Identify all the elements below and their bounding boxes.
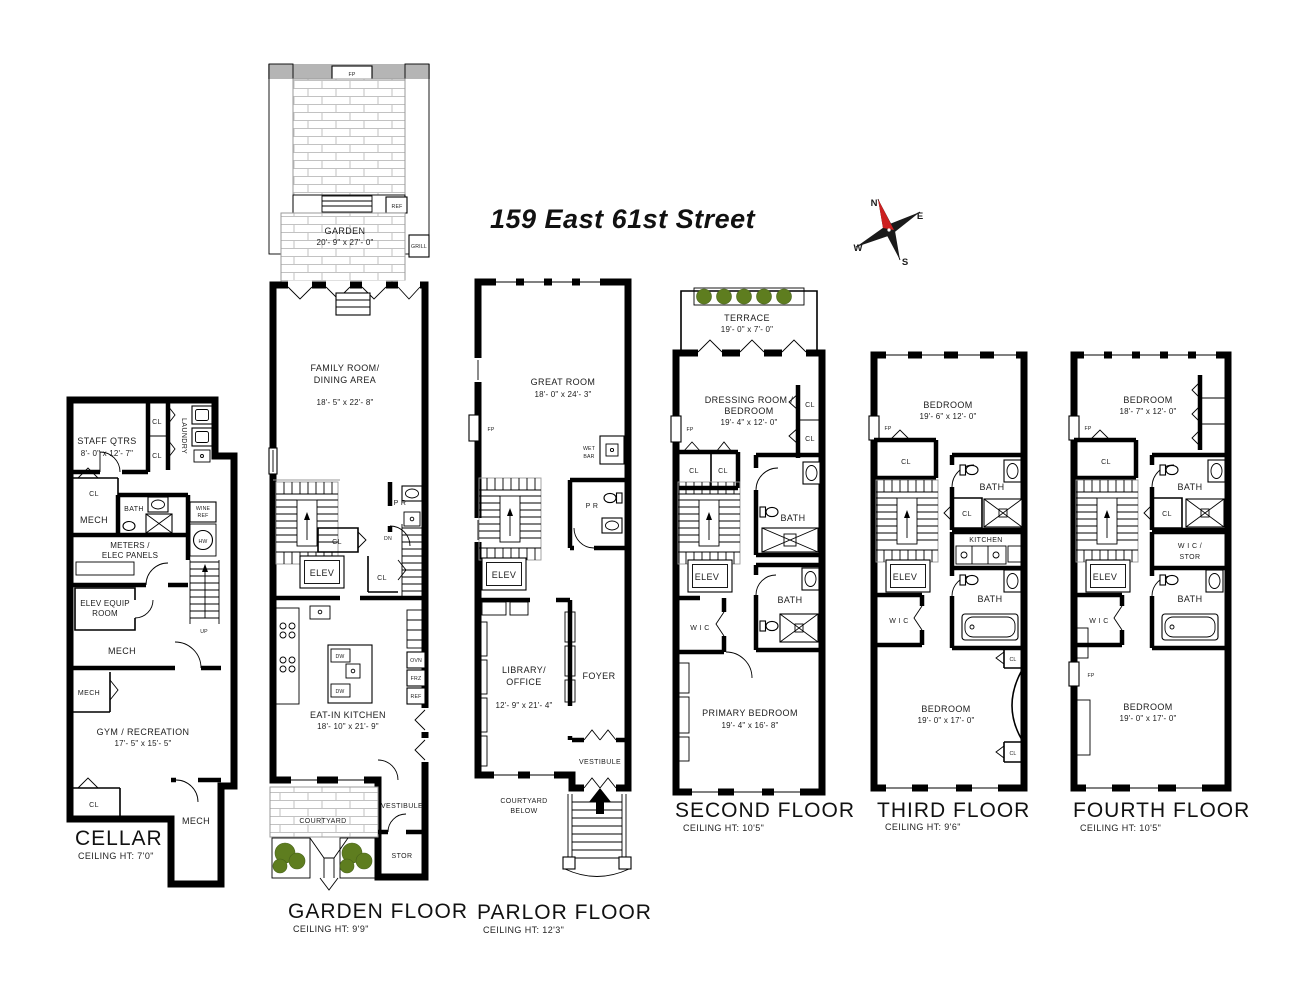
floor-ceiling-third: CEILING HT: 9'6" (885, 822, 961, 832)
floorplan-second: TERRACE 19'- 0" x 7'- 0" DRESSING ROOM /… (671, 288, 855, 833)
sink-icon (1206, 570, 1223, 592)
room-label-garden: GARDEN (325, 226, 366, 236)
room-label-cl: CL (901, 459, 911, 466)
label-dw: DW (335, 689, 344, 695)
room-label-cl: CL (1162, 511, 1172, 518)
room-label-dressing-2: BEDROOM (724, 406, 773, 416)
label-courtyard-below-1: COURTYARD (500, 798, 547, 805)
room-label-bath: BATH (978, 594, 1003, 604)
room-label-family-1: FAMILY ROOM/ (311, 363, 380, 373)
label-fp: FP (487, 427, 494, 433)
label-fp: FP (1087, 673, 1094, 679)
tub-icon (762, 528, 818, 552)
fireplace-box (671, 416, 681, 442)
compass-rose-icon: N E W S (854, 198, 924, 268)
room-label-mech: MECH (80, 515, 108, 525)
room-dim-staff-qtrs: 8'- 0" x 12'- 7" (81, 449, 133, 458)
courtyard-planter-right (340, 838, 377, 878)
floorplan-parlor: GREAT ROOM 18'- 0" x 24'- 3" FP WET BAR … (469, 278, 652, 936)
sink-icon (1004, 460, 1021, 482)
room-label-gym: GYM / RECREATION (97, 727, 190, 737)
room-label-vestibule: VESTIBULE (579, 759, 621, 766)
label-wet-2: BAR (583, 454, 594, 460)
room-label-bedroom: BEDROOM (1123, 395, 1172, 405)
fireplace-box (1069, 416, 1079, 440)
tub-icon (1162, 614, 1218, 640)
room-label-elev: ELEV (492, 570, 517, 580)
wet-bar (600, 436, 624, 464)
room-label-bath: BATH (778, 595, 803, 605)
room-label-cl: CL (962, 511, 972, 518)
room-label-bath: BATH (781, 513, 806, 523)
floor-ceiling-parlor: CEILING HT: 12'3" (483, 925, 564, 935)
courtyard-planter-left (272, 838, 310, 878)
room-label-cl: CL (805, 402, 815, 409)
room-label-cl: CL (89, 491, 99, 498)
sheet-title: 159 East 61st Street (490, 204, 756, 234)
room-label-bath: BATH (1178, 594, 1203, 604)
room-label-cl: CL (152, 419, 162, 426)
room-label-elev: ELEV (695, 572, 720, 582)
room-label-cl: CL (689, 468, 699, 475)
floorplan-fourth: BEDROOM 18'- 7" x 12'- 0" FP CL BATH CL … (1069, 351, 1250, 834)
room-label-foyer: FOYER (582, 671, 615, 681)
room-label-great-room: GREAT ROOM (531, 377, 596, 387)
garden-paving (281, 213, 405, 283)
room-label-cl: CL (1009, 657, 1016, 663)
room-label-wic: W I C (889, 618, 909, 625)
room-label-pr: P R (586, 503, 599, 510)
label-ref: REF (411, 694, 422, 700)
toilet-icon (960, 575, 978, 585)
garden-terrace-paving (293, 79, 405, 195)
room-label-wic-stor-2: STOR (1180, 554, 1201, 561)
shower-icon (1186, 499, 1224, 527)
room-dim-kitchen: 18'- 10" x 21'- 9" (317, 722, 379, 731)
room-label-wic: W I C (1089, 618, 1109, 625)
room-dim-terrace: 19'- 0" x 7'- 0" (721, 325, 773, 334)
compass-n: N (871, 198, 878, 209)
room-dim-dressing: 19'- 4" x 12'- 0" (720, 418, 777, 427)
room-label-bedroom: BEDROOM (923, 400, 972, 410)
room-label-mech: MECH (182, 816, 210, 826)
room-label-cl: CL (152, 453, 162, 460)
compass-s: S (902, 257, 908, 268)
room-label-cl: CL (718, 468, 728, 475)
room-dim-primary-bedroom: 19'- 4" x 16'- 8" (721, 721, 778, 730)
room-label-terrace: TERRACE (724, 313, 770, 323)
floor-title-second: SECOND FLOOR (675, 799, 855, 822)
toilet-icon (1160, 465, 1178, 475)
sink-icon (802, 568, 819, 590)
room-label-staff-qtrs: STAFF QTRS (77, 436, 136, 446)
room-label-primary-bedroom: PRIMARY BEDROOM (702, 708, 798, 718)
room-label-mech: MECH (108, 646, 136, 656)
planting-bed-right (405, 64, 429, 254)
wine-ref-box (190, 502, 216, 522)
toilet-icon (1160, 575, 1178, 585)
room-dim-bedroom: 19'- 6" x 12'- 0" (919, 412, 976, 421)
floorplan-garden: FP GARDEN 20'- 9" x 27'- 0" REF GRILL FA… (268, 64, 468, 934)
floor-title-parlor: PARLOR FLOOR (477, 901, 652, 924)
room-label-bedroom: BEDROOM (1123, 702, 1172, 712)
room-label-bedroom: BEDROOM (921, 704, 970, 714)
compass-w: W (854, 243, 863, 254)
floor-ceiling-second: CEILING HT: 10'5" (683, 823, 764, 833)
shower-icon (146, 514, 172, 533)
room-label-meters-2: ELEC PANELS (102, 551, 158, 560)
courtyard-paving (270, 787, 378, 837)
label-frz: FRZ (411, 676, 422, 682)
room-label-courtyard: COURTYARD (299, 818, 346, 825)
room-dim-bedroom: 18'- 7" x 12'- 0" (1119, 407, 1176, 416)
room-dim-library: 12'- 9" x 21'- 4" (495, 701, 552, 710)
floor-title-fourth: FOURTH FLOOR (1073, 799, 1250, 822)
room-label-library-2: OFFICE (506, 677, 541, 687)
label-dn: DN (384, 536, 392, 542)
floor-title-third: THIRD FLOOR (877, 799, 1030, 822)
room-dim-great-room: 18'- 0" x 24'- 3" (534, 390, 591, 399)
room-label-library-1: LIBRARY/ (502, 665, 546, 675)
room-label-wic-stor-1: W I C / (1178, 543, 1202, 550)
shower-icon (780, 614, 818, 642)
room-label-laundry: LAUNDRY (180, 418, 187, 454)
label-wine-1: WINE (196, 506, 211, 512)
floor-title-garden: GARDEN FLOOR (288, 900, 468, 923)
room-dim-bedroom: 19'- 0" x 17'- 0" (1119, 714, 1176, 723)
compass-e: E (917, 211, 923, 222)
shower-icon (984, 499, 1022, 527)
floorplan-cellar: STAFF QTRS 8'- 0" x 12'- 7" CL CL LAUNDR… (70, 400, 234, 884)
room-dim-garden: 20'- 9" x 27'- 0" (316, 238, 373, 247)
sink-icon (148, 497, 168, 512)
toilet-icon (760, 507, 778, 517)
room-label-pr: P R (394, 500, 407, 507)
room-dim-family: 18'- 5" x 22'- 8" (316, 398, 373, 407)
room-label-bath: BATH (124, 506, 144, 513)
label-ref: REF (392, 204, 403, 210)
label-wine-2: REF (198, 513, 209, 519)
sink-icon (602, 518, 622, 533)
toilet-icon (123, 522, 135, 531)
room-dim-bedroom: 19'- 0" x 17'- 0" (917, 716, 974, 725)
toilet-icon (604, 493, 622, 503)
sink-icon (803, 462, 820, 484)
toilet-icon (760, 621, 778, 631)
washer-icon (192, 406, 212, 424)
room-label-elev: ELEV (1093, 572, 1118, 582)
label-ovn: OVN (410, 658, 422, 664)
fireplace-box (1069, 662, 1079, 686)
toilet-icon (960, 465, 978, 475)
label-fp: FP (884, 426, 891, 432)
room-label-cl: CL (377, 575, 387, 582)
dryer-icon (192, 428, 212, 446)
room-label-kitchen: KITCHEN (969, 537, 1003, 544)
floor-title-cellar: CELLAR (75, 827, 163, 850)
room-label-family-2: DINING AREA (314, 375, 376, 385)
room-label-kitchen: EAT-IN KITCHEN (310, 710, 386, 720)
sink-icon (402, 486, 422, 501)
floor-ceiling-garden: CEILING HT: 9'9" (293, 924, 369, 934)
room-label-cl: CL (805, 436, 815, 443)
room-label-cl: CL (1101, 459, 1111, 466)
floorplan-canvas: 159 East 61st Street N E W S STAFF QTRS … (0, 0, 1294, 1000)
fireplace-box (469, 415, 479, 441)
room-label-mech: MECH (78, 690, 100, 697)
tub-icon (962, 614, 1018, 640)
room-label-bath: BATH (980, 482, 1005, 492)
label-wet-1: WET (583, 446, 596, 452)
floorplan-third: BEDROOM 19'- 6" x 12'- 0" FP CL BATH CL … (869, 351, 1030, 833)
label-dw: DW (335, 654, 344, 660)
label-fp: FP (686, 427, 693, 433)
room-label-elev: ELEV (310, 568, 335, 578)
room-label-cl: CL (332, 539, 342, 546)
floorplan-sheet: 159 East 61st Street N E W S STAFF QTRS … (0, 0, 1294, 1000)
label-hw: HW (198, 539, 207, 545)
label-grill: GRILL (411, 244, 427, 250)
room-label-dressing-1: DRESSING ROOM / (705, 395, 794, 405)
label-fp: FP (348, 72, 355, 78)
room-label-elev-equip-2: ROOM (92, 609, 118, 618)
floor-ceiling-cellar: CEILING HT: 7'0" (78, 851, 154, 861)
fireplace-box (869, 416, 879, 440)
room-label-vestibule: VESTIBULE (381, 803, 423, 810)
room-label-stor: STOR (392, 853, 413, 860)
room-label-cl: CL (1009, 751, 1016, 757)
sink-icon (1004, 570, 1021, 592)
room-label-meters-1: METERS / (110, 541, 150, 550)
room-label-elev: ELEV (893, 572, 918, 582)
room-label-bath: BATH (1178, 482, 1203, 492)
label-fp: FP (1084, 426, 1091, 432)
room-dim-gym: 17'- 5" x 15'- 5" (114, 739, 171, 748)
sink-icon (1208, 460, 1225, 482)
floor-ceiling-fourth: CEILING HT: 10'5" (1080, 823, 1161, 833)
label-up: UP (200, 629, 208, 635)
room-label-cl: CL (89, 802, 99, 809)
room-label-wic: W I C (690, 625, 710, 632)
label-courtyard-below-2: BELOW (510, 808, 537, 815)
room-label-elev-equip-1: ELEV EQUIP (80, 599, 130, 608)
